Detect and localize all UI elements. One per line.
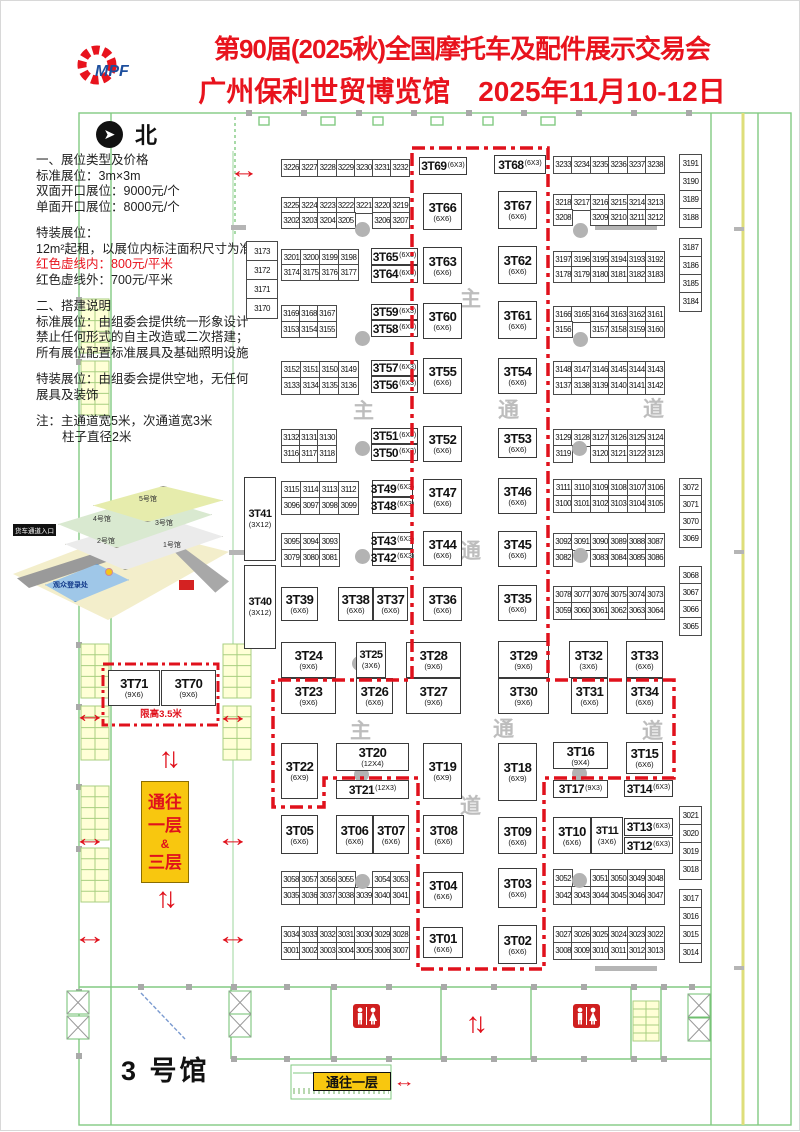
booth-cell: 3020 <box>679 824 702 844</box>
booth-cell: 3004 <box>336 942 356 960</box>
booth-size: (6X3) <box>399 380 416 388</box>
booth-id: 3T20 <box>359 746 387 759</box>
booth-cell: 3101 <box>571 495 591 513</box>
booth-id: 3T63 <box>429 255 457 268</box>
booth-id: 3T67 <box>504 199 532 212</box>
hall-3-label: 3 号馆 <box>121 1049 210 1088</box>
booth-size: (6X6) <box>365 698 383 707</box>
t-booth-3t11: 3T11(3X6) <box>591 817 623 854</box>
booth-id: 3T21 <box>349 784 374 796</box>
booth-id: 3T62 <box>504 254 532 267</box>
booth-size: (6X6) <box>433 606 451 615</box>
booth-cell: 3080 <box>300 549 321 567</box>
booth-size: (6X3) <box>399 448 416 456</box>
booth-size: (6X6) <box>345 837 363 846</box>
booth-id: 3T28 <box>420 649 448 662</box>
booth-cell: 3153 <box>281 321 301 339</box>
t-booth-3t05: 3T05(6X6) <box>281 815 318 854</box>
booth-cell: 3179 <box>571 266 591 283</box>
inset-hall5-label: 5号馆 <box>139 494 157 504</box>
booth-size: (6X3) <box>399 308 416 316</box>
booth-id: 3T39 <box>286 593 314 606</box>
booth-id: 3T45 <box>504 538 532 551</box>
t-booth-3t56: 3T56(6X3) <box>371 376 418 393</box>
booth-cell: 3135 <box>319 377 340 395</box>
booth-cell: 3140 <box>608 377 628 395</box>
booth-id: 3T54 <box>504 365 532 378</box>
booth-cell: 3230 <box>354 159 374 177</box>
booth-id: 3T19 <box>429 760 457 773</box>
t-booth-3t08: 3T08(6X6) <box>423 815 464 854</box>
t-booth-3t37: 3T37(6X6) <box>373 587 408 621</box>
booth-size: (3X6) <box>579 662 597 671</box>
t-booth-3t31: 3T31(6X6) <box>571 678 608 714</box>
booth-id: 3T47 <box>429 486 457 499</box>
t-booth-3t41: 3T41(3X12) <box>244 477 276 561</box>
booth-cell: 3043 <box>571 886 591 905</box>
t-booth-3t39: 3T39(6X6) <box>281 587 318 621</box>
t-booth-3t09: 3T09(6X6) <box>498 817 537 854</box>
booth-id: 3T01 <box>429 932 457 945</box>
t-booth-3t58: 3T58(6X3) <box>371 320 418 337</box>
sign-line: 三层 <box>148 851 182 874</box>
booth-cell: 3063 <box>627 602 647 620</box>
booth-size: (3X12) <box>249 520 272 529</box>
booth-size: (6X6) <box>346 606 364 615</box>
booth-id: 3T05 <box>286 824 314 837</box>
t-booth-3t04: 3T04(6X6) <box>423 872 463 908</box>
booth-cell: 3084 <box>608 549 628 567</box>
booth-id: 3T33 <box>631 649 659 662</box>
aisle-label: 道 <box>642 715 663 745</box>
to-floor1-3-sign: 通往 一层 & 三层 <box>141 781 189 883</box>
booth-cell: 3038 <box>336 887 356 905</box>
booth-size: (9X6) <box>424 662 442 671</box>
aisle-label: 主 <box>353 395 374 425</box>
booth-cell: 3209 <box>590 209 610 226</box>
booth-id: 3T42 <box>371 552 396 564</box>
booth-cell: 3097 <box>300 497 321 515</box>
booth-cell: 3188 <box>679 208 702 228</box>
booth-cell: 3155 <box>317 321 337 339</box>
booth-cell: 3174 <box>281 264 302 281</box>
booth-size: (6X6) <box>508 445 526 454</box>
booth-cell: 3207 <box>390 212 410 229</box>
pillar <box>573 223 588 238</box>
booth-size: (6X3) <box>397 484 414 492</box>
booth-cell: 3006 <box>372 942 392 960</box>
booth-cell: 3064 <box>645 602 665 620</box>
booth-cell: 3081 <box>319 549 340 567</box>
booth-size: (9X6) <box>125 690 143 699</box>
venue-overview-inset: 5号馆 4号馆 3号馆 2号馆 1号馆 货车通道入口 观众登录处 <box>13 488 229 620</box>
entrance-arrow-icon: ↔ <box>229 160 259 183</box>
t-booth-3t32: 3T32(3X6) <box>569 641 608 678</box>
booth-id: 3T43 <box>371 535 396 547</box>
pillar <box>355 874 370 889</box>
booth-size: (6X6) <box>433 499 451 508</box>
booth-size: (9X6) <box>514 662 532 671</box>
booth-size: (9X6) <box>299 662 317 671</box>
floorplan-page: { "header": { "logo_text": "MPF", "title… <box>0 0 800 1131</box>
booth-cell: 3190 <box>679 172 702 192</box>
t-booth-3t62: 3T62(6X6) <box>498 246 537 284</box>
inset-hall4-label: 4号馆 <box>93 514 111 524</box>
booth-size: (6X6) <box>381 606 399 615</box>
t-booth-3t02: 3T02(6X6) <box>498 925 537 964</box>
booth-id: 3T37 <box>377 593 405 606</box>
booth-size: (6X3) <box>653 784 670 792</box>
t-booth-3t06: 3T06(6X6) <box>336 815 373 854</box>
t-booth-3t65: 3T65(6X3) <box>371 248 418 265</box>
booth-cell: 3117 <box>299 445 319 463</box>
booth-cell: 3136 <box>338 377 359 395</box>
booth-cell: 3181 <box>608 266 628 283</box>
booth-cell: 3116 <box>281 445 301 463</box>
entrance-arrow-icon: ↔ <box>73 825 107 851</box>
booth-size: (9X6) <box>424 698 442 707</box>
booth-cell: 3008 <box>553 942 573 960</box>
booth-id: 3T40 <box>248 597 271 608</box>
pillar <box>573 548 588 563</box>
t-booth-3t20: 3T20(12X4) <box>336 743 409 771</box>
t-booth-3t12: 3T12(6X3) <box>624 837 673 854</box>
booth-cell: 3119 <box>553 445 573 463</box>
booth-id: 3T46 <box>504 485 532 498</box>
booth-cell: 3142 <box>645 377 665 395</box>
booth-cell: 3157 <box>590 321 610 338</box>
t-booth-3t28: 3T28(9X6) <box>406 642 461 678</box>
booth-cell: 3003 <box>317 942 337 960</box>
t-booth-3t26: 3T26(6X6) <box>356 678 393 714</box>
booth-cell: 3079 <box>281 549 302 567</box>
booth-size: (9X6) <box>179 690 197 699</box>
booth-id: 3T34 <box>631 685 659 698</box>
booth-cell: 3019 <box>679 842 702 862</box>
t-booth-3t18: 3T18(6X9) <box>498 743 537 801</box>
booth-size: (9X6) <box>299 698 317 707</box>
stairs-arrow-icon: ↑↓ <box>465 1009 480 1037</box>
booth-size: (9X4) <box>571 758 589 767</box>
booth-size: (6X3) <box>399 432 416 440</box>
booth-id: 3T58 <box>373 323 398 335</box>
t-booth-3t07: 3T07(6X6) <box>373 815 409 854</box>
booth-cell: 3178 <box>553 266 573 283</box>
booth-id: 3T31 <box>576 685 604 698</box>
booth-cell: 3086 <box>645 549 665 567</box>
booth-size: (6X6) <box>635 662 653 671</box>
booth-cell: 3238 <box>645 156 665 174</box>
t-booth-3t25: 3T25(3X6) <box>356 642 386 678</box>
t-booth-3t38: 3T38(6X6) <box>338 587 373 621</box>
booth-id: 3T49 <box>371 483 396 495</box>
t-booth-3t55: 3T55(6X6) <box>423 358 462 394</box>
booth-id: 3T38 <box>342 593 370 606</box>
t-booth-3t36: 3T36(6X6) <box>423 587 462 621</box>
t-booth-3t61: 3T61(6X6) <box>498 301 537 339</box>
booth-cell: 3002 <box>299 942 319 960</box>
booth-size: (6X6) <box>433 268 451 277</box>
entrance-arrow-icon: ↔ <box>216 702 250 728</box>
booth-id: 3T48 <box>371 500 396 512</box>
booth-cell: 3180 <box>590 266 610 283</box>
booth-size: (6X6) <box>290 606 308 615</box>
booth-cell: 3233 <box>553 156 573 174</box>
booth-id: 3T18 <box>504 761 532 774</box>
inset-hall3-label: 3号馆 <box>155 518 173 528</box>
booth-cell: 3041 <box>390 887 410 905</box>
booth-cell: 3176 <box>319 264 340 281</box>
booth-cell: 3228 <box>317 159 337 177</box>
booth-cell: 3236 <box>608 156 628 174</box>
booth-id: 3T57 <box>373 362 398 374</box>
booth-cell: 3160 <box>645 321 665 338</box>
booth-size: (6X3) <box>399 324 416 332</box>
booth-size: (6X3) <box>397 536 414 544</box>
booth-size: (12X4) <box>361 759 384 768</box>
booth-id: 3T12 <box>627 840 652 852</box>
booth-size: (6X3) <box>399 270 416 278</box>
booth-size: (9X3) <box>585 785 602 793</box>
t-booth-3t70: 3T70(9X6) <box>161 670 216 706</box>
booth-id: 3T27 <box>420 685 448 698</box>
booth-size: (6X6) <box>433 378 451 387</box>
booth-cell: 3133 <box>281 377 302 395</box>
t-booth-3t33: 3T33(6X6) <box>626 641 663 678</box>
booth-id: 3T29 <box>510 649 538 662</box>
booth-cell: 3013 <box>645 942 665 960</box>
booth-cell: 3096 <box>281 497 302 515</box>
booth-cell: 3060 <box>571 602 591 620</box>
t-booth-3t51: 3T51(6X3) <box>371 428 418 444</box>
t-booth-3t67: 3T67(6X6) <box>498 191 537 229</box>
booth-cell: 3035 <box>281 887 301 905</box>
t-booth-3t01: 3T01(6X6) <box>423 927 463 958</box>
t-booth-3t40: 3T40(3X12) <box>244 565 276 649</box>
booth-id: 3T11 <box>596 826 618 837</box>
booth-id: 3T65 <box>373 251 398 263</box>
booth-cell: 3061 <box>590 602 610 620</box>
to-floor1-sign: 通往一层 <box>313 1072 391 1091</box>
aisle-label: 主 <box>350 715 371 745</box>
sign-line: 通往 <box>148 791 182 814</box>
booth-cell: 3202 <box>281 212 301 229</box>
t-booth-3t57: 3T57(6X3) <box>371 360 418 376</box>
booth-cell: 3015 <box>679 925 702 945</box>
booth-cell: 3105 <box>645 495 665 513</box>
t-booth-3t68: 3T68(6X3) <box>494 155 546 174</box>
inset-highlight-dot <box>105 568 113 576</box>
booth-cell: 3208 <box>553 209 573 226</box>
aisle-label: 通 <box>498 394 519 424</box>
booth-cell: 3217 <box>571 194 591 211</box>
booth-id: 3T44 <box>429 538 457 551</box>
t-booth-3t64: 3T64(6X3) <box>371 265 418 283</box>
booth-id: 3T03 <box>504 877 532 890</box>
booth-cell: 3237 <box>627 156 647 174</box>
inset-hall2-label: 2号馆 <box>97 536 115 546</box>
booth-id: 3T52 <box>429 433 457 446</box>
booth-size: (6X9) <box>508 774 526 783</box>
booth-size: (6X3) <box>653 823 670 831</box>
booth-size: (6X6) <box>563 838 581 847</box>
booth-cell: 3235 <box>590 156 610 174</box>
booth-cell: 3103 <box>608 495 628 513</box>
booth-size: (6X6) <box>508 947 526 956</box>
t-booth-3t43: 3T43(6X3) <box>372 532 413 549</box>
booth-id: 3T50 <box>373 447 398 459</box>
t-booth-3t24: 3T24(9X6) <box>281 642 336 678</box>
booth-id: 3T08 <box>430 824 458 837</box>
booth-cell: 3170 <box>246 298 278 319</box>
pillar <box>572 873 587 888</box>
booth-id: 3T35 <box>504 592 532 605</box>
booth-id: 3T04 <box>429 879 457 892</box>
booth-cell: 3047 <box>645 886 665 905</box>
booth-cell: 3138 <box>571 377 591 395</box>
booth-cell: 3141 <box>627 377 647 395</box>
inset-entrance-tag: 货车通道入口 <box>13 524 56 536</box>
stairs-arrow-icon: ↑↓ <box>158 744 173 772</box>
booth-cell: 3017 <box>679 889 702 909</box>
booth-id: 3T70 <box>175 677 203 690</box>
booth-id: 3T71 <box>120 677 148 690</box>
entrance-arrow-icon: ↔ <box>73 701 107 727</box>
t-booth-3t52: 3T52(6X6) <box>423 426 462 462</box>
booth-size: (6X6) <box>508 378 526 387</box>
booth-id: 3T51 <box>373 430 398 442</box>
booth-cell: 3211 <box>627 209 647 226</box>
t-booth-3t17: 3T17(9X3) <box>553 780 608 798</box>
t-booth-3t49: 3T49(6X3) <box>372 480 413 497</box>
booth-size: (6X6) <box>434 892 452 901</box>
booth-cell: 3099 <box>338 497 359 515</box>
booth-cell: 3036 <box>299 887 319 905</box>
t-booth-3t53: 3T53(6X6) <box>498 428 537 458</box>
aisle-label: 主 <box>460 283 481 313</box>
booth-cell: 3204 <box>317 212 337 229</box>
booth-cell: 3016 <box>679 907 702 927</box>
booth-cell: 3185 <box>679 274 702 294</box>
t-booth-3t66: 3T66(6X6) <box>423 193 462 230</box>
booth-cell: 3082 <box>553 549 573 567</box>
booth-cell: 3187 <box>679 238 702 258</box>
booth-cell: 3139 <box>590 377 610 395</box>
booth-cell: 3011 <box>608 942 628 960</box>
booth-size: (6X6) <box>508 838 526 847</box>
booth-cell: 3229 <box>336 159 356 177</box>
booth-cell: 3059 <box>553 602 573 620</box>
booth-id: 3T32 <box>575 649 603 662</box>
booth-cell: 3203 <box>299 212 319 229</box>
t-booth-3t46: 3T46(6X6) <box>498 478 537 514</box>
t-booth-3t27: 3T27(9X6) <box>406 678 461 714</box>
t-booth-3t60: 3T60(6X6) <box>423 303 462 339</box>
pillar <box>355 222 370 237</box>
booth-id: 3T55 <box>429 365 457 378</box>
booth-size: (6X6) <box>433 551 451 560</box>
booth-cell: 3001 <box>281 942 301 960</box>
booth-cell: 3039 <box>354 887 374 905</box>
booth-id: 3T16 <box>567 745 595 758</box>
booth-cell: 3065 <box>679 617 702 636</box>
booth-cell: 3037 <box>317 887 337 905</box>
booth-cell: 3227 <box>299 159 319 177</box>
booth-cell: 3173 <box>246 241 278 262</box>
booth-cell: 3009 <box>571 942 591 960</box>
pillar <box>573 332 588 347</box>
booth-cell: 3154 <box>299 321 319 339</box>
t-booth-3t44: 3T44(6X6) <box>423 531 462 566</box>
t-booth-3t14: 3T14(6X3) <box>624 780 673 797</box>
t-booth-3t34: 3T34(6X6) <box>626 678 663 714</box>
booth-cell: 3165 <box>571 306 591 323</box>
t-booth-3t54: 3T54(6X6) <box>498 358 537 394</box>
sign-line: 一层 <box>148 814 182 837</box>
booth-cell: 3226 <box>281 159 301 177</box>
booth-id: 3T22 <box>286 760 314 773</box>
booth-cell: 3137 <box>553 377 573 395</box>
booth-size: (12X3) <box>375 785 396 793</box>
t-booth-3t21: 3T21(12X3) <box>336 780 409 799</box>
t-booth-3t69: 3T69(6X3) <box>419 157 467 175</box>
entrance-arrow-icon: ↔ <box>393 1073 415 1090</box>
booth-cell: 3104 <box>627 495 647 513</box>
t-booth-3t50: 3T50(6X3) <box>371 444 418 461</box>
booth-size: (6X3) <box>397 501 414 509</box>
booth-cell: 3123 <box>645 445 665 463</box>
booth-id: 3T07 <box>377 824 405 837</box>
t-booth-3t30: 3T30(9X6) <box>498 678 549 714</box>
booth-size: (6X3) <box>399 252 416 260</box>
booth-size: (6X6) <box>508 498 526 507</box>
booth-id: 3T17 <box>559 783 584 795</box>
booth-size: (6X6) <box>508 267 526 276</box>
t-booth-3t29: 3T29(9X6) <box>498 641 549 678</box>
t-booth-3t15: 3T15(6X6) <box>626 742 663 774</box>
aisle-label: 通 <box>493 713 514 743</box>
entrance-arrow-icon: ↔ <box>216 825 250 851</box>
booth-size: (3X12) <box>249 608 272 617</box>
aisle-label: 通 <box>460 535 481 565</box>
t-booth-3t71: 3T71(9X6) <box>108 670 160 706</box>
inset-hall1-label: 1号馆 <box>163 540 181 550</box>
booth-cell: 3100 <box>553 495 573 513</box>
height-limit-label: 限高3.5米 <box>121 706 201 720</box>
booth-cell: 3098 <box>319 497 340 515</box>
booth-size: (6X6) <box>433 323 451 332</box>
booth-size: (6X6) <box>290 837 308 846</box>
booth-cell: 3021 <box>679 806 702 826</box>
booth-id: 3T09 <box>504 825 532 838</box>
booth-cell: 3005 <box>354 942 374 960</box>
booth-id: 3T66 <box>429 201 457 214</box>
booth-cell: 3156 <box>553 321 573 338</box>
booth-id: 3T24 <box>295 649 323 662</box>
booth-id: 3T30 <box>510 685 538 698</box>
booth-size: (6X3) <box>653 841 670 849</box>
t-booth-3t45: 3T45(6X6) <box>498 531 537 567</box>
booth-size: (6X6) <box>434 837 452 846</box>
booth-size: (6X6) <box>433 214 451 223</box>
booth-id: 3T68 <box>498 159 523 171</box>
aisle-label: 道 <box>643 393 664 423</box>
t-booth-3t23: 3T23(9X6) <box>281 678 336 714</box>
booth-size: (6X6) <box>508 605 526 614</box>
booth-id: 3T06 <box>341 824 369 837</box>
pillar <box>572 441 587 456</box>
booth-size: (6X3) <box>397 553 414 561</box>
